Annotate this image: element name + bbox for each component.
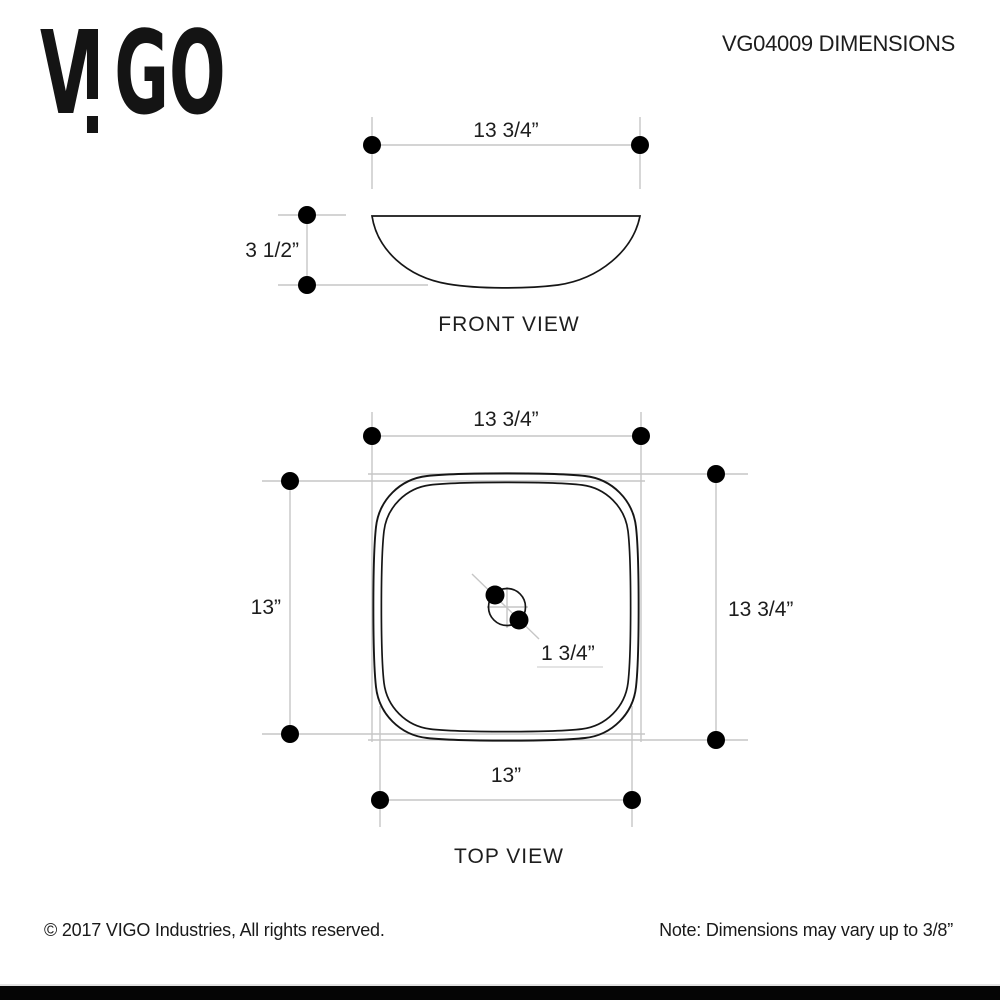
dimension-dot [281, 725, 299, 743]
dimension-dot [371, 791, 389, 809]
front-height-dimension-label: 3 1/2” [245, 239, 299, 262]
dimension-dot [510, 611, 529, 630]
front-width-dimension-label: 13 3/4” [473, 119, 538, 142]
copyright-text: © 2017 VIGO Industries, All rights reser… [44, 920, 385, 941]
dimension-dot [298, 276, 316, 294]
dimension-dot [486, 586, 505, 605]
drain-dimension-label: 1 3/4” [541, 642, 595, 665]
left-dimension-label: 13” [251, 596, 281, 619]
bottom-dimension-label: 13” [491, 764, 521, 787]
front-bowl-outline [372, 216, 640, 288]
right-dimension-label: 13 3/4” [728, 598, 793, 621]
dimension-dot [363, 136, 381, 154]
dimension-dot [707, 731, 725, 749]
drain-leader-line [472, 574, 539, 639]
dimension-dot [298, 206, 316, 224]
dimension-dot [623, 791, 641, 809]
dimension-dot [363, 427, 381, 445]
dimension-dot [631, 136, 649, 154]
note-text: Note: Dimensions may vary up to 3/8” [659, 920, 953, 941]
front-view-caption: FRONT VIEW [438, 313, 579, 336]
top-width-dimension-label: 13 3/4” [473, 408, 538, 431]
footer: © 2017 VIGO Industries, All rights reser… [44, 920, 953, 941]
dimension-dot [281, 472, 299, 490]
dimension-dot [632, 427, 650, 445]
footer-bar [0, 986, 1000, 1000]
dimension-diagram: 13 3/4” 3 1/2” FRONT VIEW 13 3/4” [0, 0, 1000, 1000]
front-view: 13 3/4” 3 1/2” FRONT VIEW [245, 117, 649, 336]
top-view: 13 3/4” 13” 13 3/4” 13” [251, 408, 794, 868]
top-view-caption: TOP VIEW [454, 845, 564, 868]
dimension-dot [707, 465, 725, 483]
dimensions-sheet: V GO VG04009 DIMENSIONS 13 3/4” 3 1/2” [0, 0, 1000, 1000]
